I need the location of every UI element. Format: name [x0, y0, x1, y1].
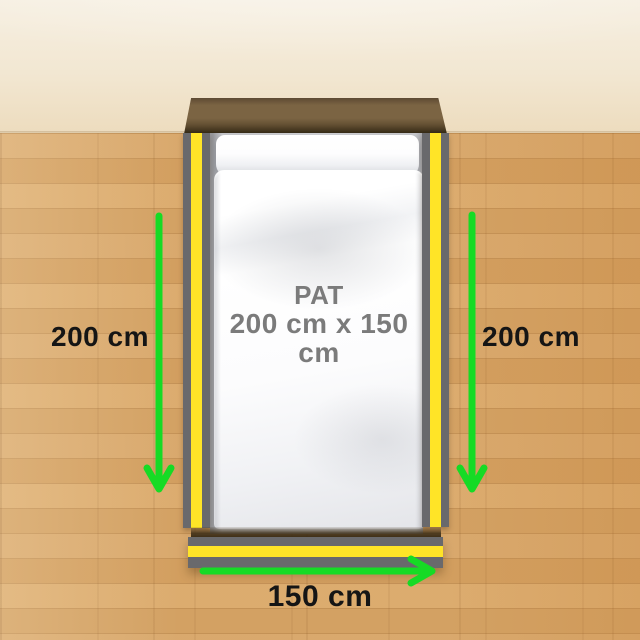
bed-footboard [188, 537, 443, 568]
measurement-label-bottom: 150 cm [248, 580, 392, 614]
bed-headboard [184, 98, 447, 134]
bed-side-rail-right [422, 133, 449, 527]
measurement-label-right: 200 cm [469, 321, 593, 353]
bed-dimensions-diagram: 200 cm 200 cm 150 cm PAT 200 cm x 150 cm [0, 0, 640, 640]
bed-name-text: PAT [214, 282, 424, 309]
bed-size-text: 200 cm x 150 cm [214, 309, 424, 367]
bed-label: PAT 200 cm x 150 cm [214, 282, 424, 367]
measurement-label-left: 200 cm [38, 321, 162, 353]
bed-side-rail-left [183, 133, 210, 528]
